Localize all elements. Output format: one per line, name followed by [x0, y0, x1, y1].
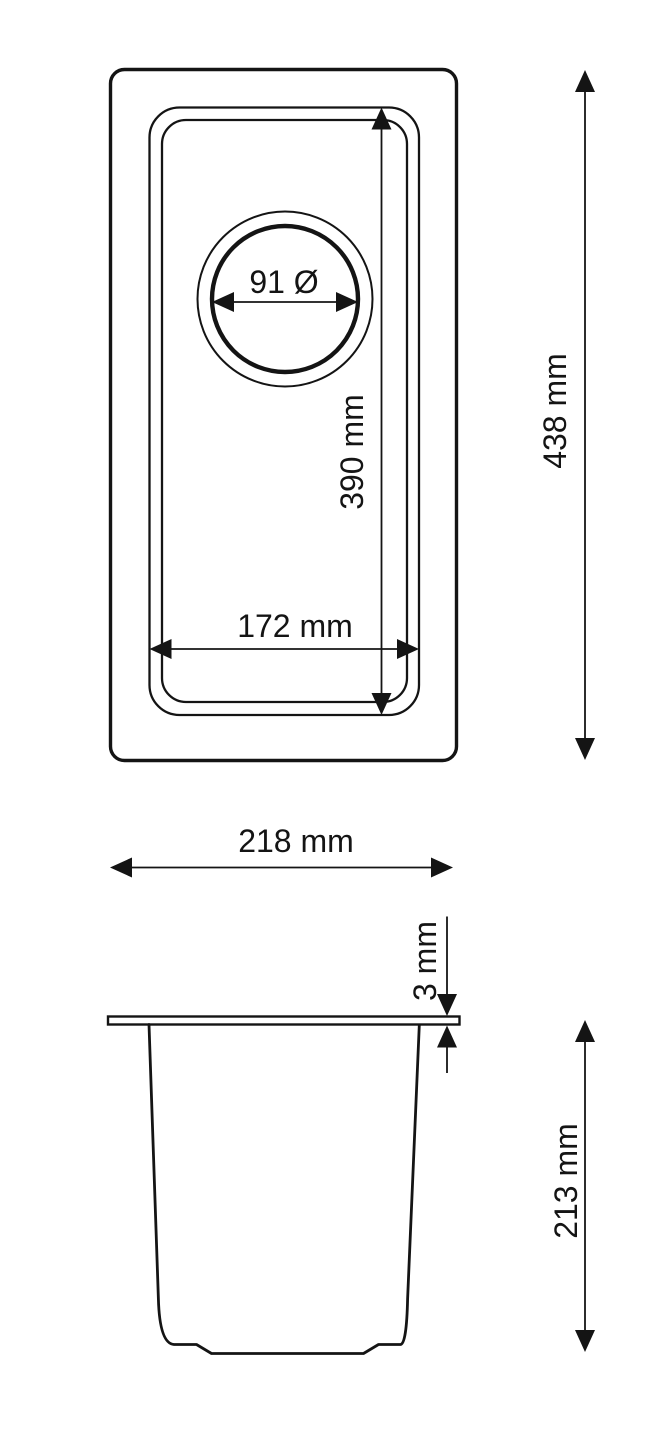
- dim-label-overall-length: 438 mm: [537, 353, 573, 469]
- dim-bowl-width: 172 mm: [150, 608, 420, 659]
- arrow-down-icon: [575, 1330, 595, 1352]
- dim-label-overall-width: 218 mm: [238, 823, 354, 859]
- arrow-down-icon: [575, 738, 595, 760]
- top-view: 91 Ø 390 mm 172 mm 438 mm: [111, 70, 596, 761]
- dim-label-rim-thickness: 3 mm: [407, 921, 443, 1001]
- arrow-left-icon: [110, 858, 132, 878]
- arrow-up-icon: [575, 70, 595, 92]
- dim-label-bowl-depth: 213 mm: [548, 1123, 584, 1239]
- arrow-right-icon: [336, 292, 358, 312]
- arrow-left-icon: [212, 292, 234, 312]
- arrow-up-icon: [437, 1026, 457, 1048]
- dim-overall-length: 438 mm: [537, 70, 595, 760]
- rim-flange: [108, 1017, 460, 1025]
- arrow-down-icon: [372, 693, 392, 715]
- arrow-up-icon: [372, 108, 392, 130]
- dim-rim-thickness: 3 mm: [407, 917, 457, 1074]
- dim-bowl-depth: 213 mm: [548, 1020, 595, 1352]
- arrow-left-icon: [150, 639, 172, 659]
- sink-technical-drawing: 91 Ø 390 mm 172 mm 438 mm: [0, 0, 664, 1440]
- dim-label-drain-diameter: 91 Ø: [249, 264, 318, 300]
- bowl-profile: [149, 1025, 419, 1354]
- dim-drain-diameter: 91 Ø: [212, 264, 358, 312]
- dim-label-bowl-length: 390 mm: [334, 394, 370, 510]
- arrow-right-icon: [431, 858, 453, 878]
- dim-label-bowl-width: 172 mm: [237, 608, 353, 644]
- side-view: 218 mm 3 mm 213 mm: [108, 823, 595, 1354]
- dim-overall-width: 218 mm: [110, 823, 453, 878]
- arrow-up-icon: [575, 1020, 595, 1042]
